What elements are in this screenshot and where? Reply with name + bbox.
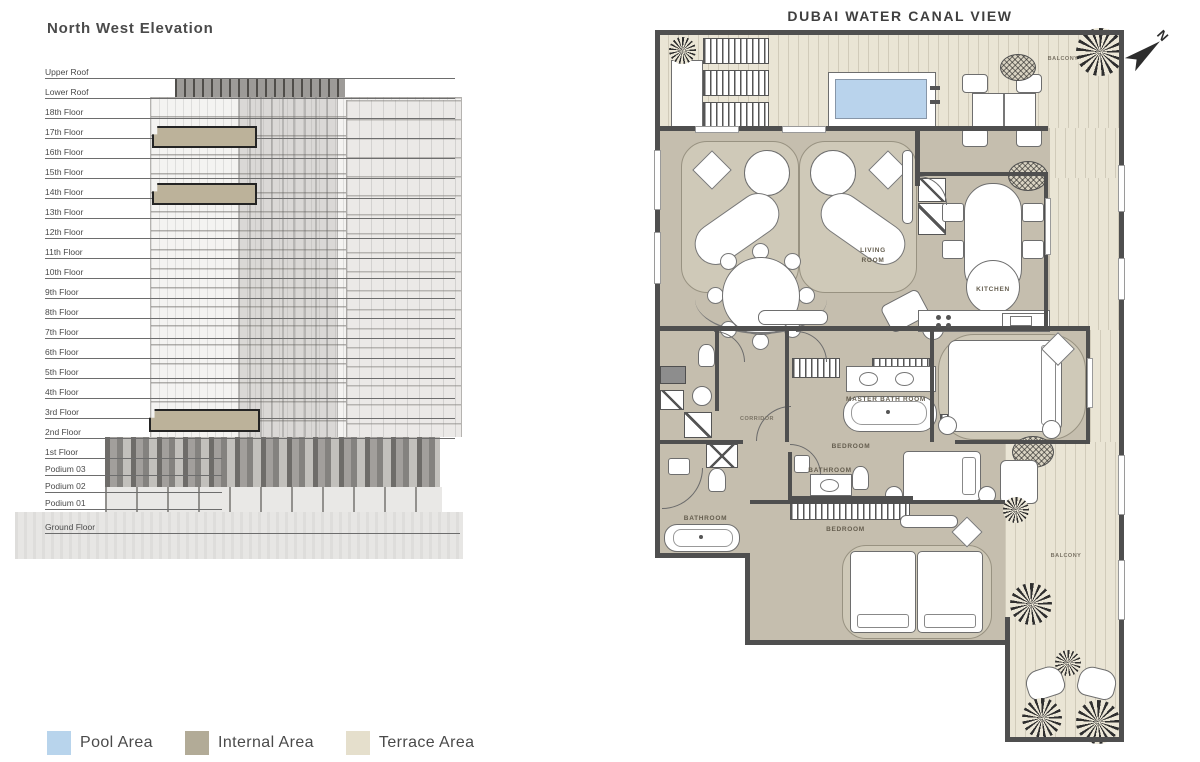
bench bbox=[758, 310, 828, 325]
master-bathroom-label: MASTER BATH ROOM bbox=[836, 395, 936, 405]
wall bbox=[930, 331, 934, 442]
wall bbox=[655, 30, 660, 558]
wall bbox=[745, 553, 750, 645]
legend-label: Pool Area bbox=[80, 734, 153, 752]
twin-bed bbox=[917, 551, 983, 633]
sink-basin bbox=[820, 479, 839, 492]
balcony-right-label: BALCONY bbox=[1042, 552, 1090, 560]
floorplan-title: DUBAI WATER CANAL VIEW bbox=[700, 8, 1100, 24]
living-room-label: LIVING ROOM bbox=[848, 246, 898, 266]
terrace-right-mid bbox=[1090, 330, 1122, 442]
legend-item-internal: Internal Area bbox=[185, 731, 314, 755]
floor-row: 7th Floor bbox=[45, 319, 455, 339]
floor-label: Ground Floor bbox=[45, 522, 95, 532]
legend: Pool Area Internal Area Terrace Area bbox=[47, 731, 492, 755]
wall bbox=[788, 452, 792, 500]
nightstand bbox=[938, 416, 957, 435]
floor-label: Podium 01 bbox=[45, 498, 86, 508]
floor-label: Upper Roof bbox=[45, 67, 88, 77]
floor-row: 6th Floor bbox=[45, 339, 455, 359]
floor-label: 16th Floor bbox=[45, 147, 83, 157]
floor-row: 10th Floor bbox=[45, 259, 455, 279]
legend-item-pool: Pool Area bbox=[47, 731, 153, 755]
floor-label: 15th Floor bbox=[45, 167, 83, 177]
floor-row: 12th Floor bbox=[45, 219, 455, 239]
bathtub bbox=[664, 524, 740, 552]
closet bbox=[790, 502, 910, 520]
drain bbox=[699, 535, 703, 539]
outdoor-chair bbox=[962, 74, 988, 93]
floor-row: 11th Floor bbox=[45, 239, 455, 259]
pillow bbox=[924, 614, 976, 628]
floor-label: Podium 03 bbox=[45, 464, 86, 474]
kitchen-chair bbox=[942, 203, 964, 222]
floor-row: Podium 02 bbox=[45, 476, 222, 493]
floor-row: 18th Floor bbox=[45, 99, 455, 119]
pool bbox=[835, 79, 927, 119]
kitchen-chair bbox=[1022, 203, 1044, 222]
plant bbox=[1022, 698, 1062, 738]
floor-label: Lower Roof bbox=[45, 87, 88, 97]
floor-label: 13th Floor bbox=[45, 207, 83, 217]
floor-row: 5th Floor bbox=[45, 359, 455, 379]
cooktop-burner bbox=[946, 315, 951, 320]
laundry-closet bbox=[706, 444, 738, 468]
legend-label: Internal Area bbox=[218, 734, 314, 752]
highlighted-unit-2nd-floor bbox=[149, 409, 260, 432]
floor-label: 11th Floor bbox=[45, 247, 83, 257]
corridor-label: CORRIDOR bbox=[736, 415, 778, 423]
sliding-door bbox=[695, 126, 739, 133]
ac-unit bbox=[703, 70, 769, 96]
twin-bed bbox=[850, 551, 916, 633]
planter bbox=[1008, 161, 1048, 191]
floor-label: 8th Floor bbox=[45, 307, 79, 317]
pool-area-swatch bbox=[47, 731, 71, 755]
floor-row: Ground Floor bbox=[45, 510, 460, 534]
wall bbox=[655, 30, 1124, 35]
plant bbox=[1003, 497, 1029, 523]
side-table bbox=[810, 150, 856, 196]
floor-label: 1st Floor bbox=[45, 447, 78, 457]
pool-deck bbox=[828, 72, 936, 128]
floor-label: 12th Floor bbox=[45, 227, 83, 237]
wall bbox=[745, 640, 1010, 645]
double-vanity bbox=[846, 366, 936, 392]
terrace-right-upper bbox=[1048, 178, 1122, 330]
side-table bbox=[744, 150, 790, 196]
window bbox=[1045, 198, 1051, 255]
bed bbox=[903, 451, 981, 501]
drain bbox=[886, 410, 890, 414]
plant bbox=[1076, 28, 1124, 76]
window bbox=[1118, 165, 1125, 212]
wall bbox=[1005, 737, 1124, 742]
toilet bbox=[708, 468, 726, 492]
bathtub-basin bbox=[673, 529, 733, 547]
bathroom-1-label: BATHROOM bbox=[678, 514, 733, 524]
balcony-top-label: BALCONY bbox=[1040, 55, 1086, 63]
legend-label: Terrace Area bbox=[379, 734, 475, 752]
pillows bbox=[962, 457, 976, 495]
wall bbox=[715, 331, 719, 411]
wall bbox=[915, 126, 920, 186]
bedroom-1-label: BEDROOM bbox=[825, 442, 877, 452]
sink-basin bbox=[859, 372, 878, 386]
bedroom-2-label: BEDROOM bbox=[818, 525, 873, 535]
floor-label: 4th Floor bbox=[45, 387, 79, 397]
outdoor-table bbox=[972, 93, 1036, 127]
cooktop-burner bbox=[936, 323, 941, 328]
vanity bbox=[810, 474, 852, 496]
cooktop-burner bbox=[936, 315, 941, 320]
floor-label: 6th Floor bbox=[45, 347, 79, 357]
pool-ladder bbox=[930, 86, 940, 90]
nightstand bbox=[1042, 420, 1061, 439]
floor-row: Podium 01 bbox=[45, 493, 222, 510]
wall bbox=[1119, 30, 1124, 742]
plant bbox=[669, 37, 696, 64]
wall bbox=[785, 331, 789, 442]
floor-row: 9th Floor bbox=[45, 279, 455, 299]
wall bbox=[750, 500, 1005, 504]
highlighted-unit-17th-floor bbox=[152, 126, 257, 148]
floor-label: 9th Floor bbox=[45, 287, 79, 297]
floor-label: 2nd Floor bbox=[45, 427, 81, 437]
plant bbox=[1010, 583, 1052, 625]
wall bbox=[955, 440, 1090, 444]
window bbox=[654, 150, 661, 210]
window bbox=[654, 232, 661, 284]
cooktop-burner bbox=[946, 323, 951, 328]
floor-row: Upper Roof bbox=[45, 59, 455, 79]
floor-label: 5th Floor bbox=[45, 367, 79, 377]
pool-ladder bbox=[930, 100, 940, 104]
floor-row: 8th Floor bbox=[45, 299, 455, 319]
window bbox=[1118, 560, 1125, 620]
kitchen-chair bbox=[1022, 240, 1044, 259]
window bbox=[1087, 358, 1093, 408]
floor-label: Podium 02 bbox=[45, 481, 86, 491]
dining-chair bbox=[752, 333, 769, 350]
legend-item-terrace: Terrace Area bbox=[346, 731, 475, 755]
floor-row: 15th Floor bbox=[45, 159, 455, 179]
louver-panel bbox=[671, 60, 703, 128]
wall bbox=[655, 553, 750, 558]
wall bbox=[1005, 617, 1010, 742]
sink-basin bbox=[895, 372, 914, 386]
kitchen-chair bbox=[942, 240, 964, 259]
ac-unit bbox=[703, 38, 769, 64]
cushion bbox=[692, 150, 732, 190]
bathroom-2-label: BATHROOM bbox=[802, 466, 858, 476]
pillow bbox=[857, 614, 909, 628]
ac-unit bbox=[703, 102, 769, 128]
floor-label: 3rd Floor bbox=[45, 407, 79, 417]
internal-area-swatch bbox=[185, 731, 209, 755]
planter bbox=[1000, 54, 1036, 81]
floor-row: Lower Roof bbox=[45, 79, 455, 99]
floor-label: 10th Floor bbox=[45, 267, 83, 277]
window bbox=[1118, 455, 1125, 515]
tv-console bbox=[902, 150, 913, 224]
bench bbox=[900, 515, 958, 528]
window bbox=[1118, 258, 1125, 300]
highlighted-unit-14th-floor bbox=[152, 183, 257, 205]
shaft bbox=[660, 366, 686, 384]
sliding-door bbox=[782, 126, 826, 133]
terrace-area-swatch bbox=[346, 731, 370, 755]
toilet bbox=[698, 344, 715, 367]
floor-label: 17th Floor bbox=[45, 127, 83, 137]
north-arrow-label: N bbox=[1154, 27, 1171, 44]
wall bbox=[658, 326, 1090, 331]
wall bbox=[658, 440, 743, 444]
kitchen-label: KITCHEN bbox=[963, 285, 1023, 295]
floor-row: 4th Floor bbox=[45, 379, 455, 399]
sink bbox=[692, 386, 712, 406]
floor-row: Podium 03 bbox=[45, 459, 222, 476]
floor-label: 7th Floor bbox=[45, 327, 79, 337]
floor-label: 14th Floor bbox=[45, 187, 83, 197]
living-rug bbox=[799, 141, 917, 293]
floor-row: 1st Floor bbox=[45, 439, 222, 459]
sink-basin bbox=[1010, 316, 1032, 326]
wall bbox=[915, 172, 1048, 176]
floor-label: 18th Floor bbox=[45, 107, 83, 117]
shaft bbox=[660, 390, 684, 410]
shower bbox=[684, 412, 712, 438]
elevation-title: North West Elevation bbox=[47, 20, 214, 37]
